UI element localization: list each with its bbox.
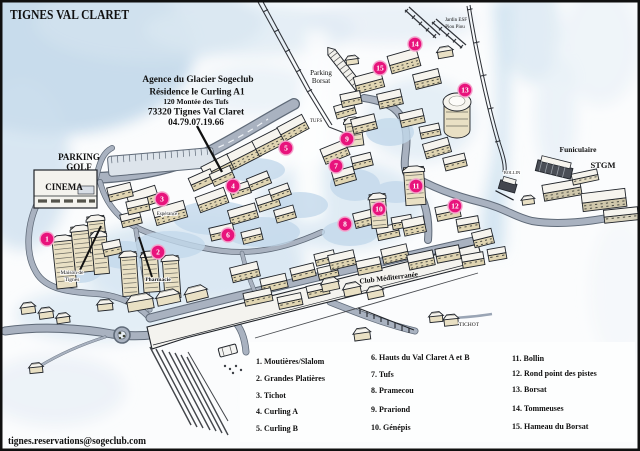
svg-text:CINEMA: CINEMA xyxy=(45,182,83,192)
svg-text:7. Tufs: 7. Tufs xyxy=(371,370,394,379)
svg-text:Tignes: Tignes xyxy=(65,277,80,283)
svg-text:2: 2 xyxy=(156,248,160,257)
svg-text:BOLLIN: BOLLIN xyxy=(504,170,521,175)
svg-text:TUFS: TUFS xyxy=(310,119,322,124)
svg-text:13. Borsat: 13. Borsat xyxy=(512,385,547,394)
svg-text:5. Curling B: 5. Curling B xyxy=(256,424,299,433)
svg-text:13: 13 xyxy=(461,86,469,95)
svg-text:6: 6 xyxy=(226,231,230,240)
svg-text:PARKING: PARKING xyxy=(58,152,100,162)
svg-text:1. Moutières/Slalom: 1. Moutières/Slalom xyxy=(256,357,325,366)
svg-text:04.79.07.19.66: 04.79.07.19.66 xyxy=(168,118,224,128)
svg-text:3. Tichot: 3. Tichot xyxy=(256,391,286,400)
svg-text:Agence du Glacier Sogeclub: Agence du Glacier Sogeclub xyxy=(142,75,253,85)
svg-text:Piou Piou: Piou Piou xyxy=(445,25,465,30)
svg-text:7: 7 xyxy=(334,162,338,171)
svg-text:Pharmacie: Pharmacie xyxy=(145,277,171,283)
svg-text:73320 Tignes Val Claret: 73320 Tignes Val Claret xyxy=(148,108,245,118)
svg-text:1: 1 xyxy=(45,235,49,244)
svg-text:Résidence le Curling A1: Résidence le Curling A1 xyxy=(149,88,245,98)
svg-text:120 Montée des Tufs: 120 Montée des Tufs xyxy=(163,97,228,106)
svg-text:12: 12 xyxy=(451,202,459,211)
svg-text:4: 4 xyxy=(231,182,235,191)
svg-text:Borsat: Borsat xyxy=(312,77,330,85)
svg-text:11: 11 xyxy=(412,182,419,191)
svg-text:6. Hauts du Val Claret A et B: 6. Hauts du Val Claret A et B xyxy=(371,353,470,362)
svg-text:10: 10 xyxy=(375,205,383,214)
svg-text:Maison de: Maison de xyxy=(60,270,84,276)
svg-text:9. Prariond: 9. Prariond xyxy=(371,405,411,414)
svg-text:STGM: STGM xyxy=(590,160,615,170)
svg-text:2. Grandes Platières: 2. Grandes Platières xyxy=(256,374,325,383)
svg-text:10. Génépis: 10. Génépis xyxy=(371,423,411,432)
svg-text:8. Pramecou: 8. Pramecou xyxy=(371,386,414,395)
svg-text:tignes.reservations@sogeclub.c: tignes.reservations@sogeclub.com xyxy=(8,436,147,447)
svg-text:GOLF: GOLF xyxy=(66,162,92,172)
svg-text:8: 8 xyxy=(343,220,347,229)
svg-text:Espérance: Espérance xyxy=(157,212,178,217)
svg-text:TICHOT: TICHOT xyxy=(459,322,480,328)
svg-text:14. Tommeuses: 14. Tommeuses xyxy=(512,404,564,413)
svg-text:Parking: Parking xyxy=(310,69,332,77)
svg-text:TIGNES VAL CLARET: TIGNES VAL CLARET xyxy=(10,8,130,23)
svg-text:15: 15 xyxy=(376,64,384,73)
svg-text:14: 14 xyxy=(411,40,419,49)
svg-text:Jardin ESF: Jardin ESF xyxy=(445,18,467,23)
svg-text:3: 3 xyxy=(160,195,164,204)
svg-text:5: 5 xyxy=(284,144,288,153)
svg-text:Funiculaire: Funiculaire xyxy=(560,145,598,154)
svg-text:11. Bollin: 11. Bollin xyxy=(512,354,545,363)
svg-text:4. Curling A: 4. Curling A xyxy=(256,407,298,416)
svg-text:12. Rond point des pistes: 12. Rond point des pistes xyxy=(512,369,597,378)
svg-text:9: 9 xyxy=(345,135,349,144)
svg-text:15. Hameau du Borsat: 15. Hameau du Borsat xyxy=(512,422,589,431)
